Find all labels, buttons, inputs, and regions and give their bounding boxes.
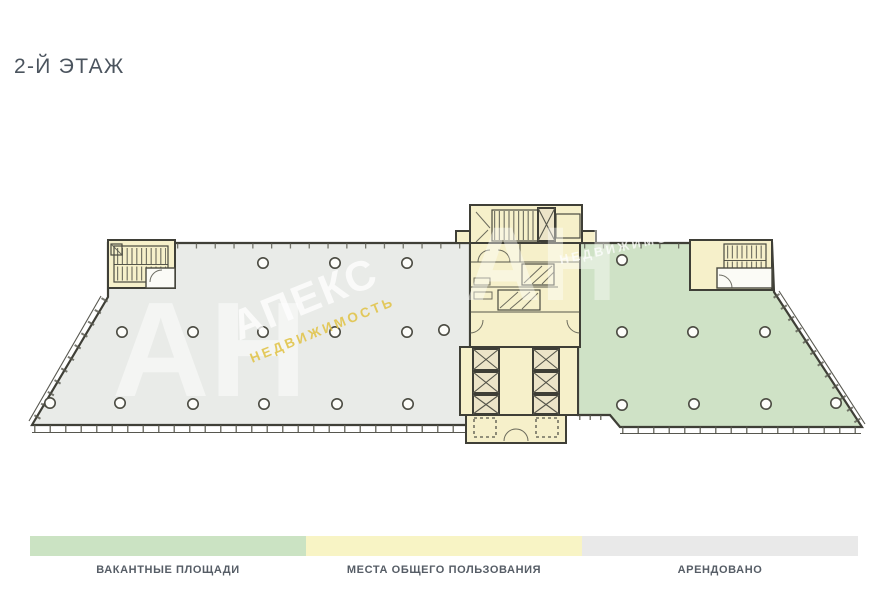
stairwell-right (690, 240, 772, 290)
column-marker (689, 399, 699, 409)
column-marker (831, 398, 841, 408)
legend-swatch-rented (582, 536, 858, 556)
legend-swatch-vacant (30, 536, 306, 556)
column-marker (45, 398, 55, 408)
column-marker (332, 399, 342, 409)
elevator-shaft (533, 395, 559, 414)
legend-label-rented: АРЕНДОВАНО (582, 564, 858, 576)
column-marker (402, 258, 412, 268)
elevator-shaft (473, 372, 499, 393)
elevator-shaft (533, 349, 559, 370)
page: { "title": "2-Й ЭТАЖ", "floor_plan": { "… (0, 0, 886, 600)
legend-labels: ВАКАНТНЫЕ ПЛОЩАДИ МЕСТА ОБЩЕГО ПОЛЬЗОВАН… (30, 564, 858, 576)
column-marker (403, 399, 413, 409)
legend-bar (30, 536, 858, 556)
column-marker (617, 327, 627, 337)
legend-label-vacant: ВАКАНТНЫЕ ПЛОЩАДИ (30, 564, 306, 576)
column-marker (617, 400, 627, 410)
column-marker (760, 327, 770, 337)
legend-label-common: МЕСТА ОБЩЕГО ПОЛЬЗОВАНИЯ (306, 564, 582, 576)
column-marker (439, 325, 449, 335)
room (717, 268, 772, 288)
floor-plan: АН АПЕКС НЕДВИЖИМОСТЬ АН НЕДВИЖИМОСТЬ (0, 0, 886, 600)
column-marker (688, 327, 698, 337)
column-marker (617, 255, 627, 265)
column-marker (761, 399, 771, 409)
watermark-initials: АН (465, 206, 617, 323)
legend-swatch-common (306, 536, 582, 556)
elevator-shaft (473, 395, 499, 414)
elevator-shaft (473, 349, 499, 370)
column-marker (258, 258, 268, 268)
column-marker (402, 327, 412, 337)
elevator-shaft (533, 372, 559, 393)
